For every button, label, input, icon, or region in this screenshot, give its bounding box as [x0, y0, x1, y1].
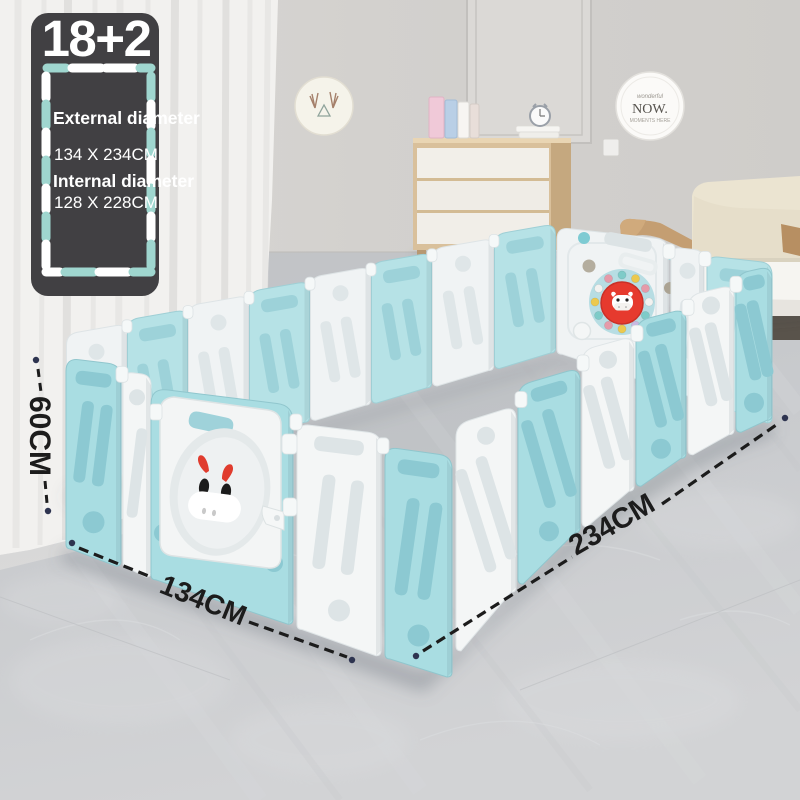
svg-text:Internal diameter: Internal diameter: [53, 171, 194, 191]
svg-text:60CM: 60CM: [23, 396, 56, 476]
svg-text:128 X 228CM: 128 X 228CM: [54, 193, 158, 212]
svg-text:134 X 234CM: 134 X 234CM: [54, 145, 158, 164]
svg-text:18+2: 18+2: [42, 10, 151, 67]
svg-text:wonderful: wonderful: [637, 94, 664, 100]
svg-text:NOW.: NOW.: [632, 102, 668, 117]
svg-text:External diameter: External diameter: [53, 108, 200, 128]
svg-text:MOMENTS HERE: MOMENTS HERE: [630, 118, 672, 124]
